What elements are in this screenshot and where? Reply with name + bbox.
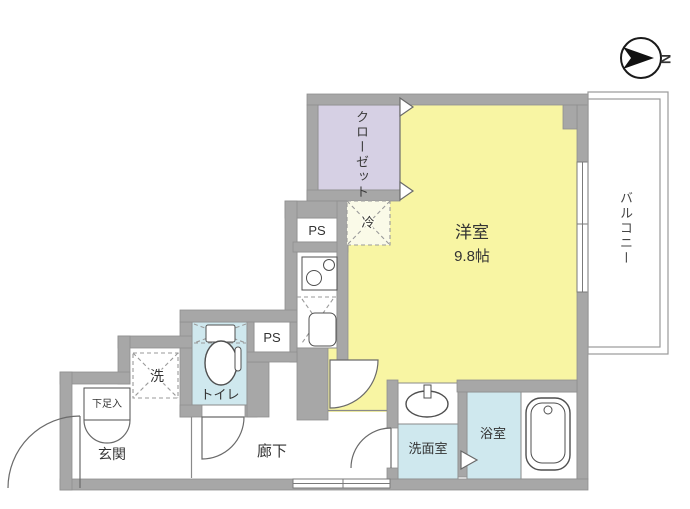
balcony-window xyxy=(577,162,588,292)
ps-lower-label: PS xyxy=(263,330,281,345)
closet-label: クローゼット xyxy=(352,110,371,200)
washroom-label: 洗面室 xyxy=(408,441,447,456)
room-floors xyxy=(72,105,577,479)
floor-plan: N 洋室 9.8帖 PS PS 冷 洗 トイレ 下足入 玄関 廊下 洗面室 浴室… xyxy=(0,0,690,509)
toilet-bowl xyxy=(205,341,237,385)
laundry-label: 洗 xyxy=(150,368,164,384)
bathroom-label: 浴室 xyxy=(480,426,506,441)
toilet-label: トイレ xyxy=(200,387,239,402)
hallway-window xyxy=(293,479,390,488)
north-label: N xyxy=(658,54,674,64)
corridor-niche-floor xyxy=(269,362,297,417)
entrance-label: 玄関 xyxy=(98,446,126,462)
balcony-label: バルコニー xyxy=(616,191,635,266)
main-room-floor xyxy=(400,105,577,383)
hallway-label: 廊下 xyxy=(257,443,287,460)
kitchen-sink xyxy=(309,313,336,346)
main-room-size: 9.8帖 xyxy=(454,248,490,265)
bathtub xyxy=(526,398,570,470)
toilet-flush xyxy=(235,347,241,371)
shoe-storage-label: 下足入 xyxy=(92,398,122,410)
toilet-tank xyxy=(206,325,235,342)
ps-upper-label: PS xyxy=(308,223,326,238)
fridge-label: 冷 xyxy=(361,215,374,230)
north-compass: N xyxy=(621,38,674,78)
floor-plan-canvas: N 洋室 9.8帖 PS PS 冷 洗 トイレ 下足入 玄関 廊下 洗面室 浴室 xyxy=(0,0,690,509)
main-room-label: 洋室 xyxy=(455,223,489,242)
